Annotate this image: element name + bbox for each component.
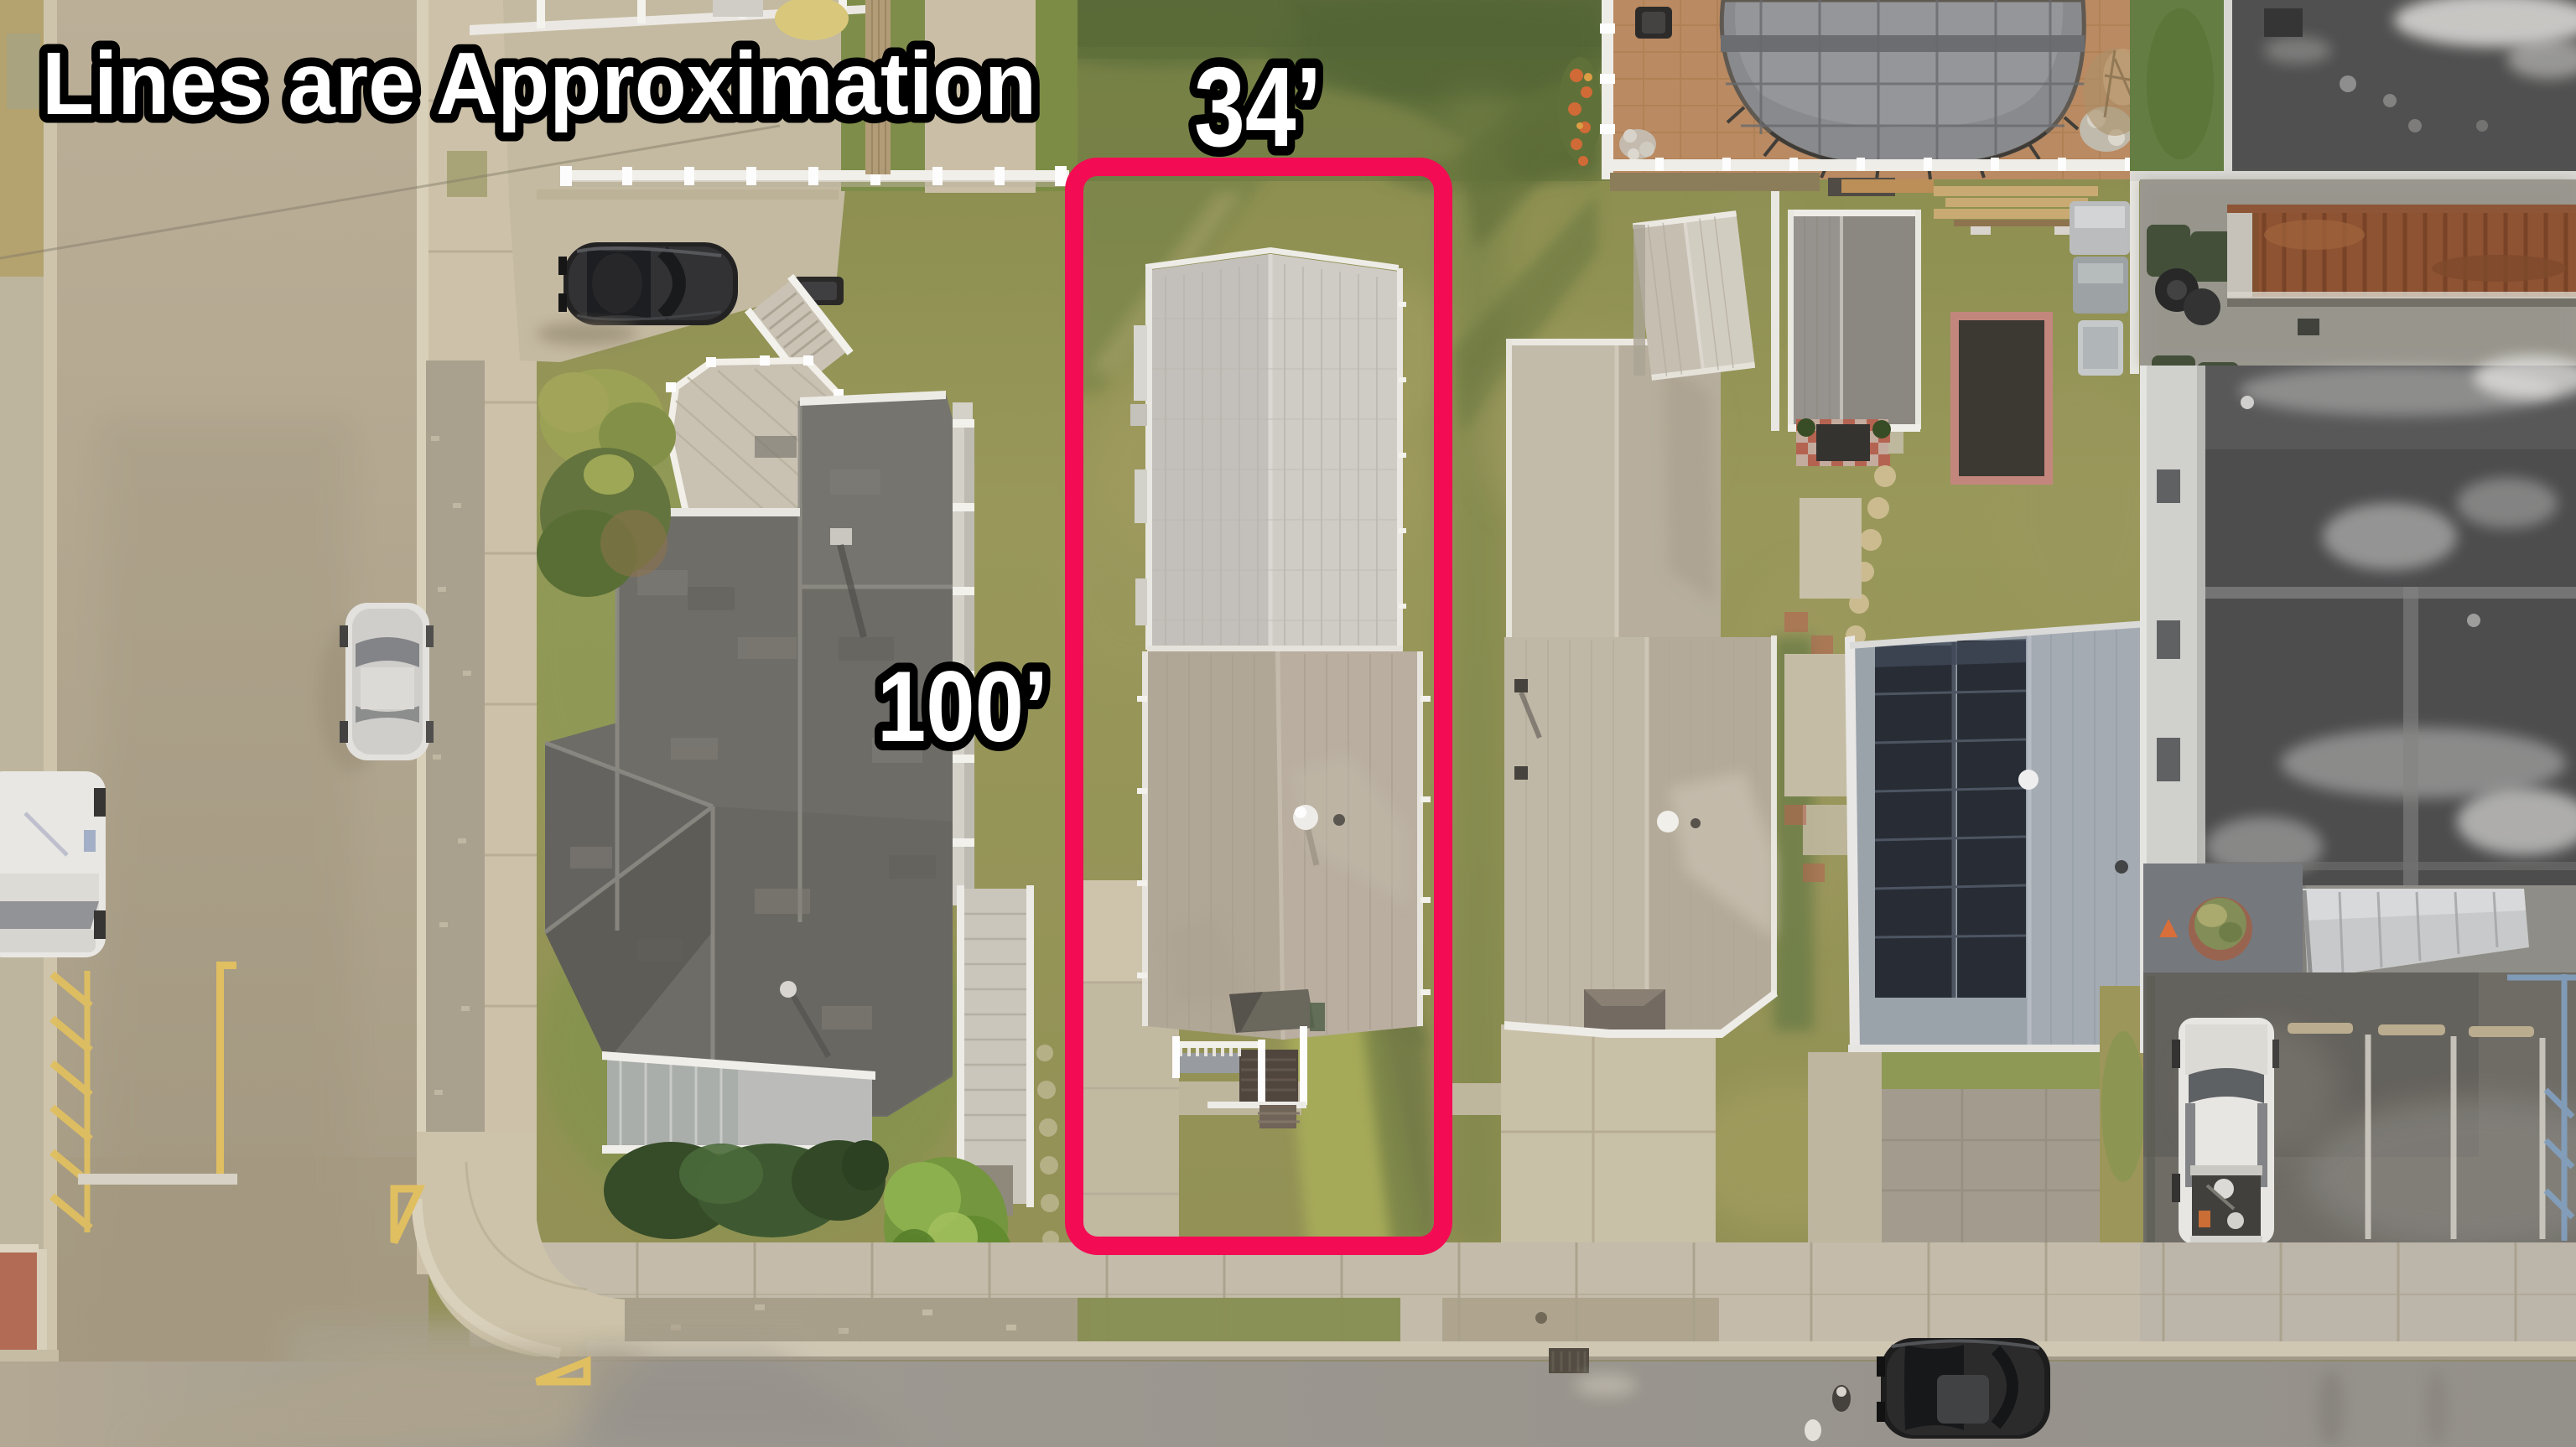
svg-text:Lines are Approximation: Lines are Approximation [42, 34, 1036, 133]
svg-text:34’: 34’ [1194, 44, 1322, 170]
svg-text:100’: 100’ [877, 651, 1048, 763]
